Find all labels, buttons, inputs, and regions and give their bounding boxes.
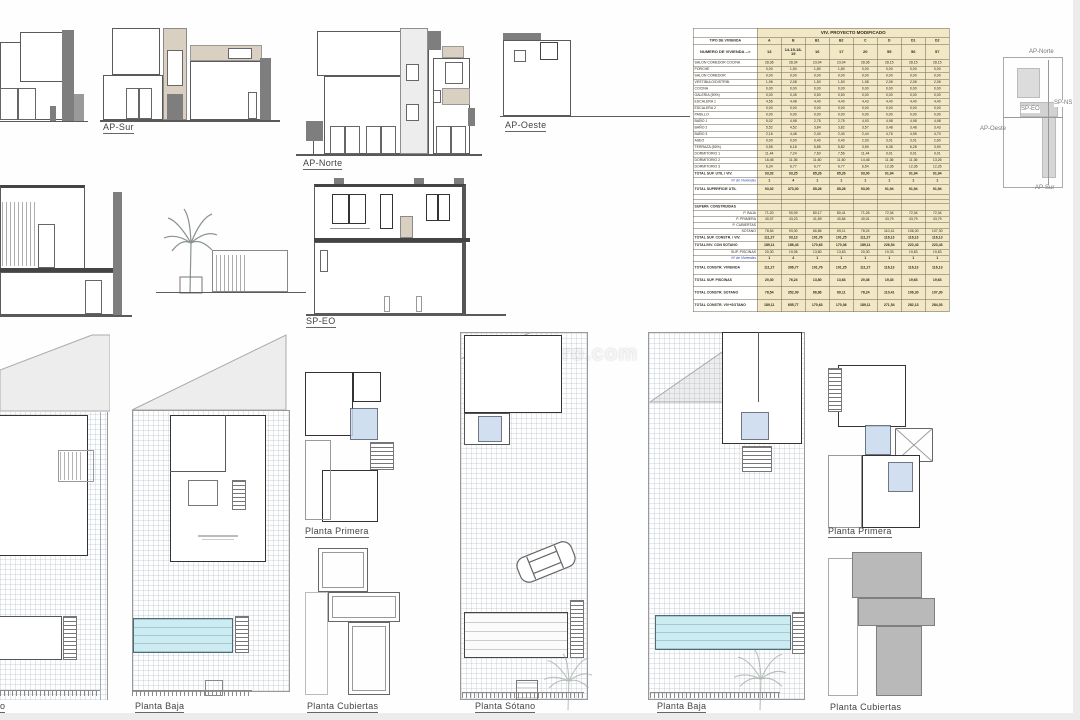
table-value-cell: 76,24	[781, 274, 805, 287]
table-row-label: TOTAL SUP. UTIL / VIV.	[693, 170, 757, 178]
table-value-cell: 93,13	[781, 234, 805, 242]
table-number-row: NUMERO DE VIVIENDA -->1314-15-18-1916172…	[693, 44, 949, 60]
table-row-label: TOTAL CONSTR. VIV+SOTANO	[693, 299, 757, 312]
ap-sur-label: AP-Sur	[103, 122, 134, 134]
palm-tree-icon	[730, 648, 790, 712]
plan-planta-cubiertas-1: Planta Cubiertas	[298, 543, 402, 711]
table-value-cell: 93,00	[853, 170, 877, 178]
table-value-cell: 93,00	[853, 184, 877, 195]
plan-label-fragment: o	[0, 701, 5, 713]
table-value-cell: 170,36	[829, 299, 853, 312]
table-row-label: TOTAL SUP. CONSTR. / VIV.	[693, 234, 757, 242]
table-value-cell: 13,80	[805, 274, 829, 287]
table-value-cell: 189,11	[853, 299, 877, 312]
table-value-cell: 373,00	[781, 184, 805, 195]
table-value-cell: 19,33	[877, 274, 901, 287]
table-value-cell: 101,76	[805, 234, 829, 242]
key-ap-norte-label: AP-Norte	[1029, 49, 1054, 56]
table-title-row: VIV. PROYECTO MODIFICADO	[693, 28, 949, 38]
table-unit-number: 57	[925, 44, 949, 60]
table-value-cell: 189,11	[853, 242, 877, 250]
table-value-cell: 19,63	[925, 274, 949, 287]
table-value-cell: 222,43	[901, 242, 925, 250]
table-value-cell: 91,94	[925, 170, 949, 178]
table-value-cell: 111,27	[853, 262, 877, 275]
table-value-cell: 85,26	[805, 170, 829, 178]
table-value-cell: 20,36	[853, 274, 877, 287]
table-unit-number: 13	[757, 44, 781, 60]
table-number-label: NUMERO DE VIVIENDA -->	[693, 44, 757, 60]
table-data-row: TOTAL SUPERFICIE UTIL93,02373,0085,2685,…	[693, 184, 949, 195]
key-plan: AP-Norte AP-Oeste AP-Sur SP-EO SP-NS	[975, 42, 1080, 198]
table-value-cell: 93,25	[781, 170, 805, 178]
table-value-cell: 91,94	[877, 170, 901, 178]
planta-sotano-label: Planta Sótano	[475, 701, 535, 713]
table-value-cell: 78,54	[757, 287, 781, 300]
elevation-ap-sur: AP-Sur	[100, 28, 282, 130]
table-value-cell: 106,30	[901, 287, 925, 300]
table-value-cell: 116,13	[925, 262, 949, 275]
planta-primera-2-label: Planta Primera	[828, 526, 892, 538]
key-ap-sur-label: AP-Sur	[1035, 185, 1054, 192]
table-unit-number: 14-15-18-19	[781, 44, 805, 60]
table-value-cell: 85,26	[829, 170, 853, 178]
table-row-label: TOTAL SUPERFICIE UTIL	[693, 184, 757, 195]
table-value-cell: 101,76	[805, 262, 829, 275]
table-corner-cell	[693, 28, 757, 38]
planta-baja-1-label: Planta Baja	[135, 701, 184, 713]
table-value-cell: 116,13	[901, 234, 925, 242]
table-value-cell: 78,24	[853, 287, 877, 300]
table-value-cell: 91,94	[901, 184, 925, 195]
table-value-cell: 116,13	[901, 262, 925, 275]
table-unit-number: 17	[829, 44, 853, 60]
table-data-row: TOTAL SUP. CONSTR. / VIV.111,2793,13101,…	[693, 234, 949, 242]
drawing-sheet: AP-Sur AP-Norte AP-Oeste	[0, 0, 1080, 720]
table-value-cell: 189,11	[757, 242, 781, 250]
key-ap-oeste-label: AP-Oeste	[980, 126, 1006, 133]
table-value-cell: 110,41	[877, 287, 901, 300]
table-value-cell: 93,02	[757, 170, 781, 178]
section-sp-eo: SP-EO	[306, 176, 506, 324]
table-value-cell: 116,13	[877, 262, 901, 275]
table-unit-number: 16	[805, 44, 829, 60]
table-value-cell: 101,25	[829, 262, 853, 275]
table-value-cell: 13,63	[829, 274, 853, 287]
table-value-cell: 189,11	[757, 299, 781, 312]
plan-partial-left: o	[0, 330, 112, 710]
plan-planta-primera-1: Planta Primera	[298, 366, 402, 536]
table-value-cell: 85,26	[805, 184, 829, 195]
table-value-cell: 111,27	[757, 262, 781, 275]
table-title: VIV. PROYECTO MODIFICADO	[757, 28, 949, 38]
table-value-cell: 170,36	[829, 242, 853, 250]
table-row-label: TOTAL/VIV. CON SOTANO	[693, 242, 757, 250]
table-value-cell: 111,27	[853, 234, 877, 242]
table-value-cell: 66,86	[805, 287, 829, 300]
section-sp-ns-partial	[0, 182, 134, 322]
table-data-row: TOTAL/VIV. CON SOTANO189,11186,43170,631…	[693, 242, 949, 250]
table-value-cell: 226,54	[877, 242, 901, 250]
table-value-cell: 284,03	[925, 299, 949, 312]
ap-oeste-label: AP-Oeste	[505, 120, 546, 132]
elevation-partial-left	[0, 28, 90, 123]
table-row-label: TOTAL CONSTR. SOTANO	[693, 287, 757, 300]
ap-norte-label: AP-Norte	[303, 158, 342, 170]
table-value-cell: 91,94	[877, 184, 901, 195]
plan-planta-primera-2: Planta Primera	[823, 362, 937, 534]
table-value-cell: 85,26	[829, 184, 853, 195]
table-value-cell: 91,94	[901, 170, 925, 178]
table-value-cell: 271,54	[877, 299, 901, 312]
table-value-cell: 116,13	[877, 234, 901, 242]
table-value-cell: 20,30	[757, 274, 781, 287]
table-value-cell: 69,11	[829, 287, 853, 300]
table-value-cell: 223,43	[925, 242, 949, 250]
key-sp-ns-label: SP-NS	[1054, 100, 1072, 107]
table-value-cell: 116,13	[925, 234, 949, 242]
table-value-cell: 396,77	[781, 262, 805, 275]
planta-baja-2-label: Planta Baja	[657, 701, 706, 713]
table-value-cell: 111,27	[757, 234, 781, 242]
key-sp-eo-label: SP-EO	[1021, 106, 1040, 113]
table-unit-number: 20	[853, 44, 877, 60]
planta-primera-1-label: Planta Primera	[305, 526, 369, 538]
surface-table-grid: VIV. PROYECTO MODIFICADOTIPO DE VIVIENDA…	[693, 28, 950, 312]
section-terrace-palm	[156, 205, 306, 297]
table-value-cell: 101,25	[829, 234, 853, 242]
palm-tree-icon	[160, 205, 220, 295]
plan-planta-sotano: Planta Sótano	[458, 330, 590, 712]
sheet-edge-bottom	[0, 713, 1080, 720]
palm-tree-icon	[540, 652, 596, 712]
table-row-label: TOTAL CONSTR. VIVIENDA	[693, 262, 757, 275]
table-value-cell: 93,02	[757, 184, 781, 195]
table-unit-number: 55	[877, 44, 901, 60]
plan-planta-baja-2: Planta Baja	[645, 330, 807, 712]
table-data-row: TOTAL CONSTR. SOTANO78,54352,0966,8669,1…	[693, 287, 949, 300]
planta-cubiertas-1-label: Planta Cubiertas	[307, 701, 378, 713]
plan-planta-baja-1: Planta Baja	[128, 330, 292, 712]
table-unit-number: 56	[901, 44, 925, 60]
table-value-cell: 170,63	[805, 242, 829, 250]
table-data-row: TOTAL SUP. PISCINAS20,3076,2413,8013,632…	[693, 274, 949, 287]
table-row-label: TOTAL SUP. PISCINAS	[693, 274, 757, 287]
table-data-row: TOTAL CONSTR. VIV+SOTANO189,11655,77170,…	[693, 299, 949, 312]
surface-table: VIV. PROYECTO MODIFICADOTIPO DE VIVIENDA…	[693, 28, 949, 301]
table-value-cell: 91,94	[925, 184, 949, 195]
elevation-ap-oeste: AP-Oeste	[500, 30, 690, 130]
table-value-cell: 19,63	[901, 274, 925, 287]
table-value-cell: 170,63	[805, 299, 829, 312]
table-value-cell: 107,30	[925, 287, 949, 300]
sp-eo-label: SP-EO	[306, 316, 336, 328]
plan-planta-cubiertas-2: Planta Cubiertas	[823, 546, 937, 712]
table-value-cell: 282,13	[901, 299, 925, 312]
table-value-cell: 186,43	[781, 242, 805, 250]
table-data-row: TOTAL CONSTR. VIVIENDA111,27396,77101,76…	[693, 262, 949, 275]
sheet-edge-right	[1073, 0, 1080, 720]
table-value-cell: 655,77	[781, 299, 805, 312]
elevation-ap-norte: AP-Norte	[286, 28, 484, 168]
table-value-cell: 352,09	[781, 287, 805, 300]
table-data-row: TOTAL SUP. UTIL / VIV.93,0293,2585,2685,…	[693, 170, 949, 178]
